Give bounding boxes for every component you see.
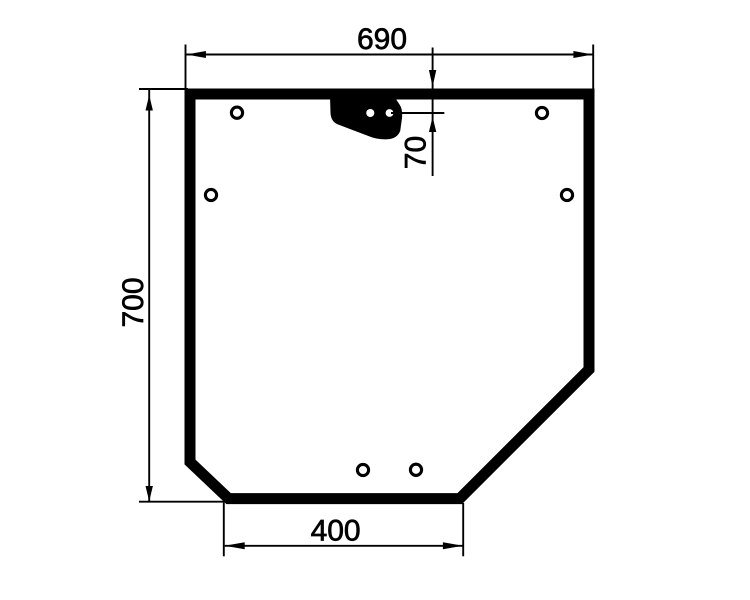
svg-text:70: 70 xyxy=(399,136,432,169)
svg-text:400: 400 xyxy=(311,514,361,547)
svg-text:690: 690 xyxy=(357,23,407,56)
svg-text:700: 700 xyxy=(117,277,150,327)
